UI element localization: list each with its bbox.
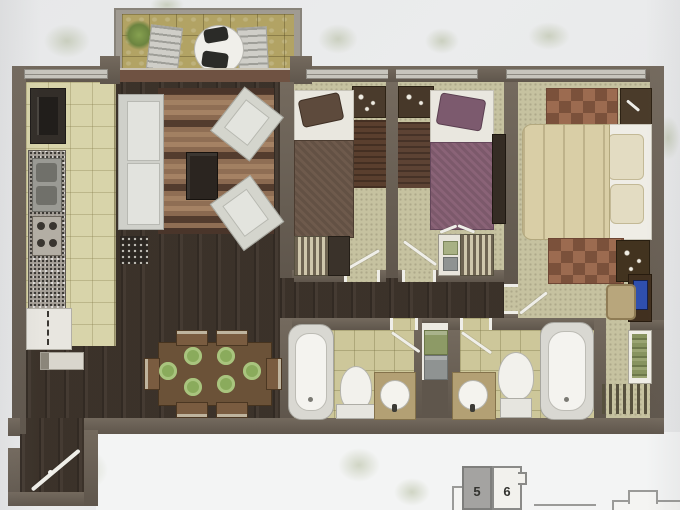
armchair-cushion	[224, 99, 270, 146]
door-sill	[415, 318, 418, 330]
bathtub	[288, 324, 334, 420]
master-door-gap	[504, 284, 518, 314]
wall-bedroom1-left	[280, 82, 294, 278]
entry-door-handle	[48, 470, 53, 475]
wall-vestibule-left-a	[8, 418, 20, 436]
shelf-item	[443, 257, 458, 271]
dining-chair	[266, 358, 282, 390]
nightstand	[352, 86, 386, 118]
plate	[217, 347, 235, 365]
bathtub-drain	[308, 397, 313, 402]
wall-bedroom2-master-a	[504, 82, 518, 284]
door-sill	[460, 318, 463, 330]
cooktop	[32, 216, 62, 256]
door-sill	[433, 270, 436, 282]
sofa-cushion	[127, 101, 160, 161]
armchair-cushion	[222, 189, 269, 237]
shelf-item	[443, 241, 458, 255]
wall-right	[650, 66, 664, 432]
unit-6-label: 6	[503, 484, 510, 499]
plate	[184, 347, 202, 365]
toilet-tank	[500, 398, 532, 418]
patio-chair	[201, 50, 229, 69]
wall-vestibule-bottom	[8, 492, 96, 506]
dining-chair	[176, 402, 208, 418]
burner	[49, 239, 57, 247]
pillow	[608, 134, 644, 180]
foliage-smudge	[528, 22, 570, 50]
wall-left	[12, 66, 26, 434]
towel-green	[424, 330, 448, 355]
burner	[37, 222, 45, 230]
dining-chair	[144, 358, 160, 390]
wall-niche-top	[422, 318, 448, 323]
wall-bedroom1-bedroom2	[386, 82, 398, 278]
towel-gray	[424, 355, 448, 380]
nightstand	[398, 86, 434, 118]
wardrobe-cabinet	[328, 236, 350, 276]
window-mullion	[388, 66, 396, 82]
dining-chair	[176, 330, 208, 346]
kitchen-cabinet	[26, 308, 72, 350]
blanket	[294, 140, 354, 238]
key-plan-outline-fragment	[534, 504, 596, 510]
foliage-smudge	[338, 448, 380, 482]
wall-bedroom1-bottom-b	[380, 270, 386, 282]
bathtub	[540, 322, 594, 420]
closet-clothes	[632, 334, 647, 378]
foliage-smudge	[318, 24, 358, 54]
pillow	[610, 184, 644, 224]
plate	[184, 378, 202, 396]
lamp-mark	[626, 99, 640, 112]
hallway-floor	[294, 278, 506, 318]
sink-basin	[36, 163, 57, 182]
hallway-entrance-gap	[280, 278, 294, 318]
door-sill	[489, 318, 492, 330]
plate	[217, 375, 235, 393]
door-sill	[504, 284, 518, 287]
wardrobe-shelf	[438, 234, 462, 276]
door-sill	[504, 311, 518, 314]
plate	[159, 362, 177, 380]
clothes-rack	[602, 384, 650, 414]
foliage-smudge	[425, 28, 459, 54]
wall-bathroom2-top-a	[448, 318, 460, 330]
blanket	[522, 124, 610, 240]
niche-lower-block	[422, 380, 448, 418]
wardrobe-clothes	[460, 234, 494, 276]
refrigerator	[30, 88, 66, 144]
bedside-rug	[398, 122, 430, 188]
toilet-bowl	[498, 352, 534, 400]
checker-rug-bottom	[548, 238, 624, 284]
wardrobe-clothes	[294, 236, 330, 276]
refrigerator-door	[37, 97, 58, 135]
foliage-smudge	[44, 24, 90, 58]
plant-basket	[120, 236, 148, 264]
bedroom2-door-gap	[402, 270, 436, 282]
bedside-rug	[354, 120, 386, 188]
kitchen-window	[24, 69, 108, 79]
paper-lower-white-area	[96, 432, 680, 510]
door-sill	[402, 270, 405, 282]
dresser	[492, 134, 506, 224]
sofa-cushion	[127, 163, 160, 225]
bathroom2-door-gap	[460, 318, 492, 330]
sofa	[118, 94, 164, 230]
floor-plan-photo: 5 6	[0, 0, 680, 510]
desk-chair	[606, 284, 636, 320]
bathtub-drain	[564, 397, 569, 402]
balcony-threshold	[118, 68, 298, 82]
burner	[37, 239, 45, 247]
blanket	[430, 142, 494, 230]
master-window	[506, 69, 646, 79]
coffee-table	[186, 152, 218, 200]
wall-vestibule-right	[84, 430, 98, 506]
key-plan-notch	[518, 472, 527, 485]
wall-bottom	[84, 418, 664, 434]
foliage-smudge	[394, 478, 430, 506]
nightstand	[620, 88, 652, 126]
plate	[243, 362, 261, 380]
toilet-tank	[336, 404, 376, 419]
dining-chair	[216, 330, 248, 346]
unit-5-label: 5	[473, 484, 480, 499]
bathroom1-door-gap	[390, 318, 418, 330]
sink-basin	[36, 186, 57, 205]
dining-chair	[216, 402, 248, 418]
kitchen-sink	[32, 158, 62, 212]
burner	[49, 222, 57, 230]
key-plan-unit-5: 5	[462, 466, 492, 510]
faucet-dot	[470, 404, 475, 412]
key-plan-outline-fragment	[628, 490, 658, 504]
faucet-dot	[392, 404, 397, 412]
door-sill	[390, 318, 393, 330]
cabinet-fold-line	[47, 311, 49, 345]
door-sill	[377, 270, 380, 282]
entry-console	[40, 352, 84, 370]
